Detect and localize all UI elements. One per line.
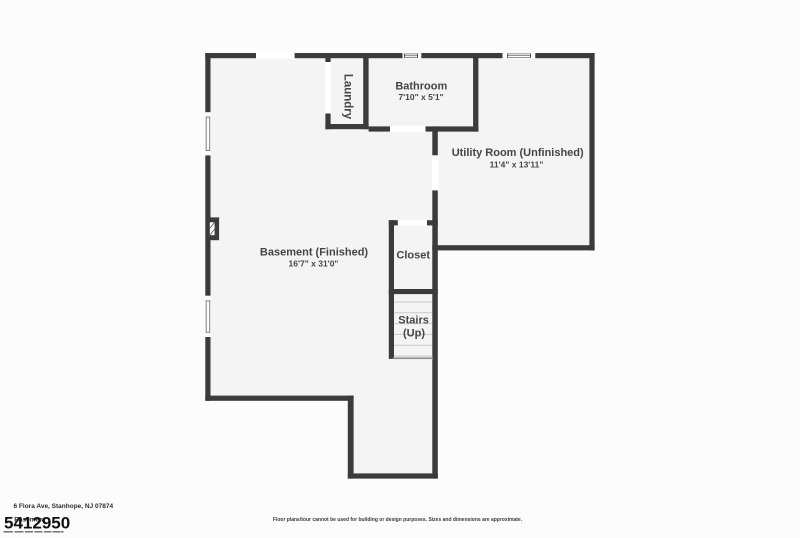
svg-text:Floor plans/tour cannot be use: Floor plans/tour cannot be used for buil… [273,517,523,523]
svg-text:Stairs: Stairs [398,315,429,327]
svg-text:Laundry: Laundry [341,74,353,120]
svg-text:Basement (Finished): Basement (Finished) [260,247,369,259]
svg-text:Bathroom: Bathroom [395,81,447,93]
svg-text:5412950: 5412950 [4,514,70,533]
svg-text:7'10" x 5'1": 7'10" x 5'1" [398,92,443,102]
svg-text:Utility Room (Unfinished): Utility Room (Unfinished) [452,147,584,159]
svg-text:(Up): (Up) [403,327,425,339]
svg-text:Closet: Closet [396,249,430,261]
svg-text:16'7" x 31'0": 16'7" x 31'0" [289,259,339,269]
svg-text:11'4" x 13'11": 11'4" x 13'11" [490,159,544,169]
svg-text:6 Flora Ave, Stanhope, NJ 0787: 6 Flora Ave, Stanhope, NJ 07874 [14,503,114,510]
